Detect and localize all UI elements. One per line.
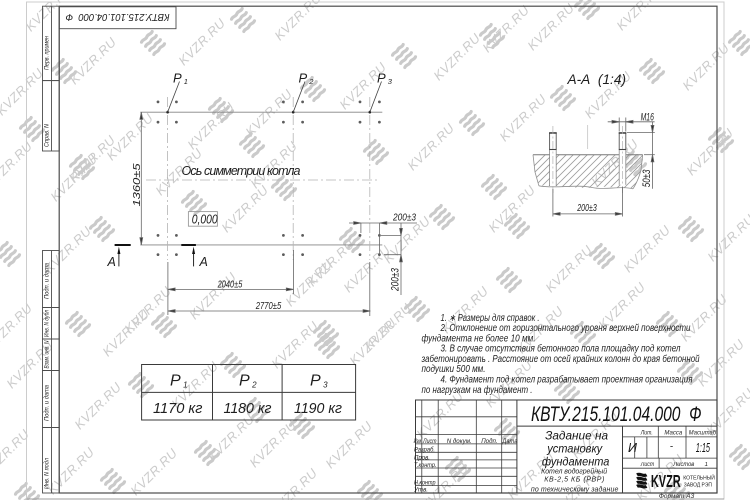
svg-text:Справ. N: Справ. N (43, 124, 50, 147)
svg-text:Перв. примен: Перв. примен (43, 35, 50, 70)
svg-text:А: А (107, 255, 116, 269)
svg-text:Лит.: Лит. (640, 431, 653, 437)
svg-text:установку: установку (546, 441, 603, 455)
svg-text:КОТЕЛЬНЫЙ: КОТЕЛЬНЫЙ (683, 474, 715, 482)
svg-text:0,000: 0,000 (192, 213, 218, 227)
svg-text:1: 1 (705, 462, 708, 468)
svg-text:М16: М16 (641, 111, 655, 123)
svg-text:1:15: 1:15 (696, 441, 710, 455)
svg-text:P 3: P 3 (377, 71, 393, 87)
svg-text:А: А (199, 255, 208, 269)
svg-text:фундамента: фундамента (542, 454, 610, 468)
svg-text:200±3: 200±3 (392, 213, 416, 224)
svg-text:Инв. N подл: Инв. N подл (43, 458, 50, 489)
svg-text:P1: P1 (170, 373, 188, 390)
svg-text:N докум.: N докум. (447, 438, 472, 445)
svg-text:Изм: Изм (414, 438, 422, 445)
svg-text:Формат А3: Формат А3 (659, 493, 695, 500)
svg-text:по нагрузкам на фундамент .: по нагрузкам на фундамент . (422, 385, 533, 396)
svg-text:P2: P2 (239, 373, 257, 390)
svg-text:P 1: P 1 (173, 71, 188, 87)
svg-text:ЗАВОД РЭП: ЗАВОД РЭП (684, 483, 712, 489)
svg-text:И: И (628, 441, 637, 455)
svg-text:Дата: Дата (501, 438, 517, 445)
svg-text:КВ-2,5 КБ (РВР): КВ-2,5 КБ (РВР) (544, 477, 604, 484)
svg-text:P3: P3 (310, 373, 328, 390)
svg-text:КВТУ.215.101.04.000 Ф: КВТУ.215.101.04.000 Ф (66, 11, 170, 22)
svg-text:Ось симметрии котла: Ось симметрии котла (182, 164, 301, 178)
svg-text:1360±5: 1360±5 (132, 163, 143, 207)
svg-text:Взам. инв. N: Взам. инв. N (43, 340, 50, 368)
svg-text:1190 кг: 1190 кг (294, 400, 343, 417)
svg-text:P 2: P 2 (299, 71, 315, 87)
svg-text:Котел водогрейный: Котел водогрейный (541, 468, 607, 476)
svg-text:-: - (670, 442, 674, 453)
svg-text:200±3: 200±3 (389, 267, 401, 291)
svg-text:Лист: Лист (640, 462, 654, 468)
svg-text:Разраб.: Разраб. (414, 447, 435, 454)
svg-text:50±3: 50±3 (641, 169, 653, 187)
svg-text:Подп. и дата: Подп. и дата (43, 384, 50, 421)
svg-text:Лист: Лист (422, 438, 436, 445)
svg-text:KVZR: KVZR (651, 471, 681, 491)
svg-text:Масса: Масса (664, 431, 683, 437)
svg-text:КВТУ.215.101.04.000 Ф: КВТУ.215.101.04.000 Ф (531, 403, 702, 426)
svg-text:200±3: 200±3 (577, 203, 598, 214)
svg-text:Т.контр.: Т.контр. (414, 462, 437, 469)
svg-text:Подп.: Подп. (481, 438, 498, 445)
svg-text:2770±5: 2770±5 (255, 301, 282, 312)
svg-text:Утв.: Утв. (413, 487, 428, 494)
svg-text:1180 кг: 1180 кг (224, 400, 273, 417)
svg-text:по техническому задание: по техническому задание (531, 486, 619, 494)
svg-text:Н.контр: Н.контр (414, 479, 436, 486)
svg-text:Инв. N дубл: Инв. N дубл (43, 310, 50, 337)
svg-text:1170 кг: 1170 кг (153, 400, 203, 417)
svg-text:Подп. и дата: Подп. и дата (43, 262, 50, 299)
svg-text:Листов: Листов (672, 462, 694, 468)
svg-text:А-А (1:4): А-А (1:4) (566, 72, 626, 87)
svg-text:2040±5: 2040±5 (217, 279, 243, 290)
svg-text:Пров.: Пров. (414, 454, 430, 461)
svg-text:Масштаб: Масштаб (689, 431, 717, 437)
